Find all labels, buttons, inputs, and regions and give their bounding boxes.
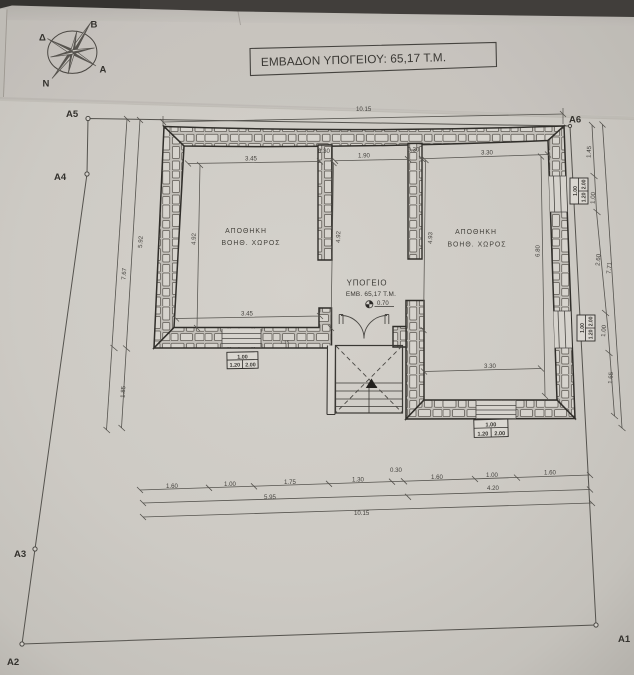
- svg-text:Α: Α: [100, 65, 107, 76]
- svg-text:ΥΠΟΓΕΙΟ: ΥΠΟΓΕΙΟ: [347, 279, 388, 288]
- svg-text:1.60: 1.60: [431, 474, 443, 481]
- svg-text:1.20: 1.20: [589, 329, 595, 339]
- svg-text:1.65: 1.65: [607, 371, 615, 384]
- svg-text:ΒΟΗΘ. ΧΩΡΟΣ: ΒΟΗΘ. ΧΩΡΟΣ: [447, 242, 506, 249]
- svg-text:ΒΟΗΘ. ΧΩΡΟΣ: ΒΟΗΘ. ΧΩΡΟΣ: [221, 240, 280, 247]
- svg-text:1.20: 1.20: [230, 363, 241, 369]
- svg-text:1.75: 1.75: [284, 479, 296, 486]
- svg-text:1.00: 1.00: [237, 355, 248, 361]
- svg-text:1.20: 1.20: [582, 192, 588, 202]
- svg-text:0.30: 0.30: [408, 147, 420, 154]
- svg-text:1.00: 1.00: [485, 422, 496, 428]
- svg-text:2.60: 2.60: [595, 253, 603, 266]
- svg-text:4.92: 4.92: [335, 230, 342, 243]
- svg-text:4.20: 4.20: [487, 485, 499, 492]
- svg-text:2.00: 2.00: [582, 179, 588, 189]
- svg-text:6.80: 6.80: [535, 244, 542, 257]
- svg-text:Β: Β: [91, 20, 98, 31]
- svg-text:3.45: 3.45: [245, 156, 257, 163]
- svg-text:1.60: 1.60: [166, 483, 178, 490]
- svg-text:A5: A5: [66, 109, 79, 120]
- svg-text:Ν: Ν: [43, 79, 50, 90]
- svg-text:3.30: 3.30: [484, 363, 496, 370]
- svg-text:7.71: 7.71: [606, 261, 614, 274]
- svg-text:2.00: 2.00: [589, 316, 595, 326]
- svg-text:1.20: 1.20: [477, 431, 488, 437]
- svg-text:A3: A3: [14, 549, 26, 560]
- svg-text:1.90: 1.90: [358, 153, 370, 160]
- svg-text:4.92: 4.92: [191, 232, 198, 245]
- svg-text:0.30: 0.30: [390, 467, 402, 474]
- svg-text:ΕΜΒ. 65,17 Τ.Μ.: ΕΜΒ. 65,17 Τ.Μ.: [346, 291, 396, 298]
- svg-text:1.00: 1.00: [600, 324, 608, 337]
- svg-text:1.15: 1.15: [280, 340, 290, 346]
- svg-text:ΑΠΟΘΗΚΗ: ΑΠΟΘΗΚΗ: [225, 228, 267, 235]
- svg-text:10.15: 10.15: [356, 106, 372, 113]
- svg-text:1.60: 1.60: [544, 470, 556, 477]
- svg-text:1.00: 1.00: [573, 186, 579, 196]
- svg-text:0.70: 0.70: [377, 301, 389, 307]
- svg-text:0.30: 0.30: [318, 148, 330, 155]
- svg-text:Δ: Δ: [39, 33, 46, 44]
- svg-text:5.95: 5.95: [264, 494, 276, 501]
- svg-text:2.00: 2.00: [494, 431, 505, 437]
- svg-text:4.93: 4.93: [427, 231, 434, 244]
- svg-text:1.00: 1.00: [486, 472, 498, 479]
- svg-text:ΑΠΟΘΗΚΗ: ΑΠΟΘΗΚΗ: [455, 229, 497, 236]
- svg-text:1.00: 1.00: [580, 323, 586, 333]
- svg-text:1.85: 1.85: [120, 385, 128, 398]
- svg-text:A6: A6: [569, 115, 581, 126]
- svg-text:1.00: 1.00: [590, 191, 598, 204]
- svg-text:3.45: 3.45: [241, 311, 253, 318]
- svg-text:10.15: 10.15: [354, 510, 370, 517]
- svg-text:1.45: 1.45: [586, 145, 594, 158]
- svg-text:A2: A2: [7, 657, 19, 668]
- svg-text:3.30: 3.30: [481, 150, 493, 157]
- svg-text:A1: A1: [618, 634, 631, 645]
- svg-text:7.67: 7.67: [121, 267, 129, 280]
- svg-text:1.00: 1.00: [224, 481, 236, 488]
- svg-text:1.30: 1.30: [352, 477, 364, 484]
- svg-text:5.92: 5.92: [137, 235, 145, 248]
- svg-text:A4: A4: [54, 172, 67, 183]
- svg-text:2.00: 2.00: [245, 362, 256, 368]
